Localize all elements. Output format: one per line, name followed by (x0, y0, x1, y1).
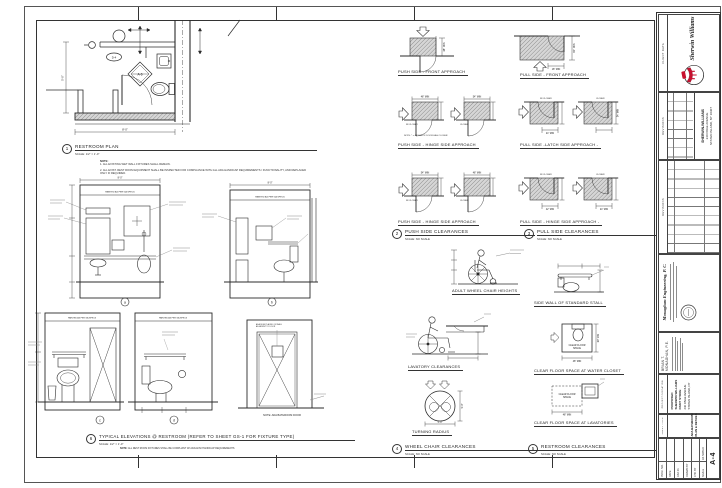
pull-clearances-caption: 3 PULL SIDE CLEARANCES SCALE: NO SCALE (524, 229, 667, 241)
elev-dim: 8'-0" (118, 177, 123, 180)
toilet-b (274, 260, 294, 272)
pull-hinge-diagram: W/ CLOSER 42" MIN (518, 170, 566, 216)
svg-text:48" MIN: 48" MIN (563, 414, 572, 417)
svg-text:60" MIN: 60" MIN (572, 43, 576, 52)
revisions-strip: REVISIONS (659, 161, 668, 253)
svg-text:5'-0": 5'-0" (438, 421, 443, 424)
sheet-title-section: SHEET TITLE ADA BATHROOM PLAN & DETAILS (658, 414, 720, 438)
elevations-ab-drawing: PAINTED AS PER GA SPECS PAINTED AS PER G… (40, 178, 332, 310)
drawing-sheet: A-6 D-4 8'-0" 5'-0" 1 RESTROOM PLAN SCAL… (0, 0, 722, 488)
project-strip: PROJECT/LOCATION (659, 375, 668, 413)
push-front-caption: PUSH SIDE - FRONT APPROACH (398, 69, 468, 76)
tank (572, 324, 584, 329)
sheet-info-section: PROJ. NO. DATE CAD ID. DRAWN BY CHK BY S… (658, 438, 720, 479)
approach-arrow-icon (399, 184, 409, 196)
svg-text:48" MIN: 48" MIN (421, 96, 430, 99)
sign-note: ADA SIGN PLACED ON WALL ADJACENT TO DOOR (256, 324, 292, 329)
pull-hinge-diagram: CLOSER 24" MIN (572, 170, 620, 216)
svg-text:24" MIN: 24" MIN (600, 209, 609, 211)
approach-arrow-icon (417, 27, 429, 37)
push-front-diagram: 48" MIN (398, 26, 456, 72)
trim-tick (552, 455, 553, 468)
approach-arrow-icon (534, 62, 546, 72)
detail-scale: SCALE: NO SCALE (405, 236, 535, 241)
door-tag-text: D-4 (112, 55, 117, 59)
toilet-d (148, 381, 172, 394)
svg-text:48" MIN: 48" MIN (473, 172, 482, 175)
ada-sign (272, 346, 283, 357)
pull-front-caption: PULL SIDE - FRONT APPROACH (520, 72, 589, 79)
tall-cabinet (236, 218, 248, 254)
detail-title: RESTROOM PLAN (75, 144, 317, 151)
caster (439, 347, 444, 352)
sheet-title-strip: SHEET TITLE (659, 415, 668, 437)
detail-number: 2 (392, 229, 402, 239)
project-section: PROJECT/LOCATION PROPOSED SHERWIN WILLIA… (658, 374, 720, 414)
push-hinge-diagram: 54" MIN W/ CLOSER (398, 170, 446, 216)
head (478, 250, 484, 256)
closer-note: NOTE: * = 48" MIN. IF DOOR HAS CLOSER (404, 135, 448, 137)
svg-text:5'-0": 5'-0" (461, 403, 464, 408)
svg-text:48" MIN: 48" MIN (573, 360, 582, 363)
project-line: SHERWIN WILLIAMS (674, 377, 678, 410)
elev-label-a: a (124, 301, 126, 305)
detail-number: 5 (528, 444, 538, 454)
revisions-strip: REVISIONS (659, 93, 668, 159)
adult-heights-caption: ADULT WHEEL CHAIR HEIGHTS (452, 288, 520, 295)
restroom-clearances-caption: 5 RESTROOM CLEARANCES SCALE: NO SCALE (528, 444, 663, 456)
light-fixture (86, 208, 110, 214)
client-data-strip: CLIENT DATA (659, 15, 668, 91)
elevations-caption: 6 TYPICAL ELEVATIONS @ RESTROOM (REFER T… (86, 434, 355, 446)
svg-text:24" MIN: 24" MIN (546, 133, 555, 135)
svg-text:W/ CLOSER: W/ CLOSER (406, 200, 418, 202)
approach-arrow-icon (451, 184, 461, 196)
lavatory (113, 30, 125, 42)
svg-text:SPACE: SPACE (573, 347, 581, 350)
elev-dim: 8'-0" (268, 182, 273, 185)
restroom-plan-caption: 1 RESTROOM PLAN SCALE: 1/2" = 1'-0" (62, 144, 317, 156)
revision-rows (668, 161, 719, 253)
tank-c (58, 358, 78, 367)
waste-basket (48, 386, 56, 400)
trim-tick (414, 7, 415, 20)
dispenser-b (256, 226, 272, 240)
bowl (573, 329, 583, 341)
engineer-section: Monaghan Engineering, P. C. (658, 254, 720, 332)
stall-side-wall-diagram (548, 262, 610, 298)
dispenser (112, 240, 124, 250)
grab-bar (558, 274, 592, 277)
lavatory-caption: LAVATORY CLEARANCES (408, 364, 463, 371)
project-line: PAINT STORE (678, 377, 682, 410)
detail-title: TYPICAL ELEVATIONS @ RESTROOM (REFER TO … (99, 434, 355, 441)
detail-scale: SCALE: 1/2" = 1'-0" (75, 151, 317, 156)
push-clearances-caption: 2 PUSH SIDE CLEARANCES SCALE: NO SCALE (392, 229, 535, 241)
approach-arrow-icon (573, 106, 583, 118)
project-line: STATEN ISLAND, NY (687, 377, 691, 410)
svg-text:W/ CLOSER: W/ CLOSER (406, 124, 418, 126)
svg-text:CLOSER: CLOSER (596, 174, 605, 176)
sheet-title-line2: PLAN & DETAILS (694, 414, 698, 437)
detail-number: 4 (392, 444, 402, 454)
band-note: PAINTED AS PER GA SPECS (105, 191, 135, 194)
svg-text:W/ CLOSER: W/ CLOSER (540, 98, 552, 100)
svg-text:54" MIN: 54" MIN (618, 109, 620, 118)
svg-text:54" MIN: 54" MIN (473, 96, 482, 99)
wall-fixture (89, 42, 96, 49)
revisions-section-a: REVISIONS SHERWIN-WILLIAMS 240 PAGE AVEN… (658, 92, 720, 160)
engineer-name: Monaghan Engineering, P. C. (662, 264, 667, 321)
approach-arrow-icon (439, 381, 449, 389)
lavatory-clearances-diagram (404, 306, 492, 360)
detail-scale: SCALE: NO SCALE (541, 451, 663, 456)
detail-title: PUSH SIDE CLEARANCES (405, 229, 535, 236)
trim-tick (276, 455, 277, 468)
paper-holder (178, 370, 185, 377)
svg-text:SPACE: SPACE (563, 396, 571, 399)
site-city: STATEN ISLAND, NY 10307 (709, 107, 713, 145)
pull-latch-caption: PULL SIDE -LATCH SIDE APPROACH - (520, 142, 601, 149)
detail-number: 3 (524, 229, 534, 239)
sherwin-williams-logo-icon (681, 63, 705, 87)
bowl (563, 283, 579, 292)
detail-scale: SCALE: 1/2" = 1'-0" (99, 441, 355, 446)
push-hinge-caption: PUSH SIDE - HINGE SIDE APPROACH (398, 142, 479, 149)
turning-radius-diagram: 5'-0" 5'-0" (418, 380, 468, 426)
approach-arrow-icon (425, 381, 435, 389)
push-hinge-caption: PUSH SIDE - HINGE SIDE APPROACH (398, 219, 479, 226)
head (429, 317, 435, 323)
push-hinge-diagram: 54" MIN CLOSER (450, 94, 498, 140)
detail-scale: SCALE: NO SCALE (537, 236, 667, 241)
svg-text:48" MIN: 48" MIN (442, 42, 446, 51)
clear-floor-wc-diagram: CLEAR FLOOR SPACE 48" MIN 60" MIN (550, 316, 606, 364)
approach-arrow-icon (519, 106, 529, 118)
turning-radius-caption: TURNING RADIUS (412, 429, 452, 436)
mirror (86, 218, 110, 254)
stall-caption: SIDE WALL OF STANDARD STALL (534, 300, 606, 307)
detail-number: 6 (86, 434, 96, 444)
pe-seal-icon (680, 304, 697, 321)
svg-text:CLOSER: CLOSER (596, 98, 605, 100)
svg-text:18" MIN: 18" MIN (552, 68, 561, 71)
revisions-section-b: REVISIONS (658, 160, 720, 254)
plan-dim: 5'-0" (61, 75, 65, 81)
push-hinge-diagram: 48" MIN W/ CLOSER (398, 94, 446, 140)
svg-text:CLOSER: CLOSER (460, 200, 469, 202)
clear-floor-lav-caption: CLEAR FLOOR SPACE AT LAVATORIES (534, 420, 617, 427)
band-note: PAINTED AS PER GA SPECS (68, 317, 97, 320)
clear-floor-lav-diagram: CLEAR FLOOR SPACE 48" MIN (544, 374, 606, 416)
svg-text:42" MIN: 42" MIN (546, 209, 555, 211)
sheet-number-box: A-4 (706, 439, 720, 478)
approach-arrow-icon (573, 182, 583, 194)
pull-front-diagram: 60" MIN 18" MIN (512, 26, 582, 72)
approach-arrow-icon (519, 182, 529, 194)
restroom-plan-drawing: A-6 D-4 8'-0" 5'-0" (46, 20, 318, 144)
plan-dim: 8'-0" (122, 128, 128, 132)
toilet (151, 83, 175, 96)
sink (157, 54, 171, 68)
sheet-number: A-4 (710, 452, 717, 465)
trim-tick (276, 7, 277, 20)
svg-text:CLOSER: CLOSER (460, 124, 469, 126)
approach-arrow-icon (451, 108, 461, 120)
detail-number: 1 (62, 144, 72, 154)
plan-notes: NOTE: 1. ALL EXISTING WET WALL FIXTURES … (100, 160, 312, 176)
elev-label-b: b (271, 301, 273, 305)
trim-tick (138, 455, 139, 468)
toilet-a (138, 255, 151, 273)
revision-rows (668, 93, 693, 159)
trim-tick (414, 455, 415, 468)
lavatory (582, 384, 598, 398)
svg-text:60" MIN: 60" MIN (597, 333, 600, 342)
site-address-box: SHERWIN-WILLIAMS 240 PAGE AVENUE STATEN … (694, 93, 720, 159)
push-hinge-diagram: 48" MIN CLOSER (450, 170, 498, 216)
elev-note: NOTE: ALL REST ROOM FIXTURES SHALL BE CO… (120, 447, 320, 450)
door-note: NOTE: ADA BATHROOM DOOR (263, 413, 301, 417)
adult-wheelchair-heights-diagram (448, 246, 530, 288)
title-block: CLIENT DATA Sherwin Williams REVISIONS (656, 12, 721, 480)
detail-title: RESTROOM CLEARANCES (541, 444, 663, 451)
receptacle (236, 260, 248, 282)
basin (90, 259, 106, 267)
elev-label-c: c (99, 419, 101, 423)
detail-tag-text: A-6 (138, 73, 143, 77)
client-name: Sherwin Williams (690, 17, 696, 61)
pull-latch-diagram: CLOSER 54" MIN (572, 94, 620, 140)
pull-latch-diagram: W/ CLOSER 24" MIN (518, 94, 566, 140)
pe-name-line2: MONAGHAN, P.E. (665, 335, 669, 371)
pull-hinge-caption: PULL SIDE - HINGE SIDE APPROACH - (520, 219, 602, 226)
approach-arrow-icon (551, 332, 559, 342)
elev-label-d: d (173, 419, 175, 423)
svg-text:W/ CLOSER: W/ CLOSER (540, 174, 552, 176)
tank-b (290, 246, 298, 262)
band-note: PAINTED AS PER GA SPECS (159, 317, 188, 320)
band-note: PAINTED AS PER GA SPECS (255, 196, 285, 199)
pe-section: BRIAN T. MONAGHAN, P.E. (658, 332, 720, 374)
trim-tick (138, 7, 139, 20)
client-data-section: CLIENT DATA Sherwin Williams (658, 14, 720, 92)
trim-tick (552, 7, 553, 20)
tank-d (142, 366, 150, 384)
caster (490, 279, 496, 285)
detail-title: PULL SIDE CLEARANCES (537, 229, 667, 236)
svg-text:54" MIN: 54" MIN (421, 172, 430, 175)
approach-arrow-icon (399, 108, 409, 120)
